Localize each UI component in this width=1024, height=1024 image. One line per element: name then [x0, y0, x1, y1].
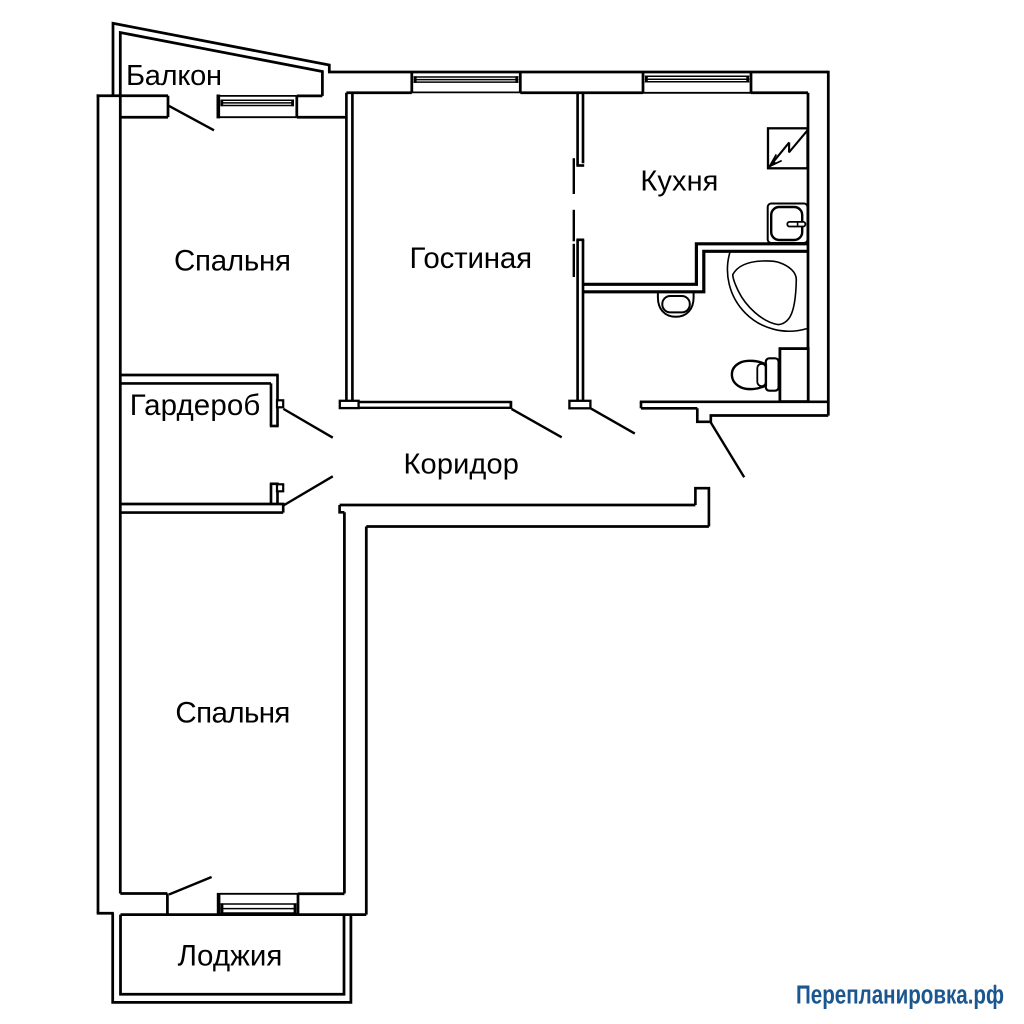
svg-text:Гардероб: Гардероб — [130, 389, 261, 422]
svg-text:Спальня: Спальня — [175, 697, 290, 730]
svg-text:Кухня: Кухня — [640, 165, 718, 197]
svg-text:Коридор: Коридор — [404, 448, 519, 480]
svg-text:Балкон: Балкон — [126, 60, 222, 92]
svg-text:Перепланировка.рф: Перепланировка.рф — [796, 982, 1004, 1010]
svg-text:Лоджия: Лоджия — [178, 940, 283, 973]
svg-text:Спальня: Спальня — [174, 245, 291, 278]
svg-text:Гостиная: Гостиная — [410, 242, 533, 275]
